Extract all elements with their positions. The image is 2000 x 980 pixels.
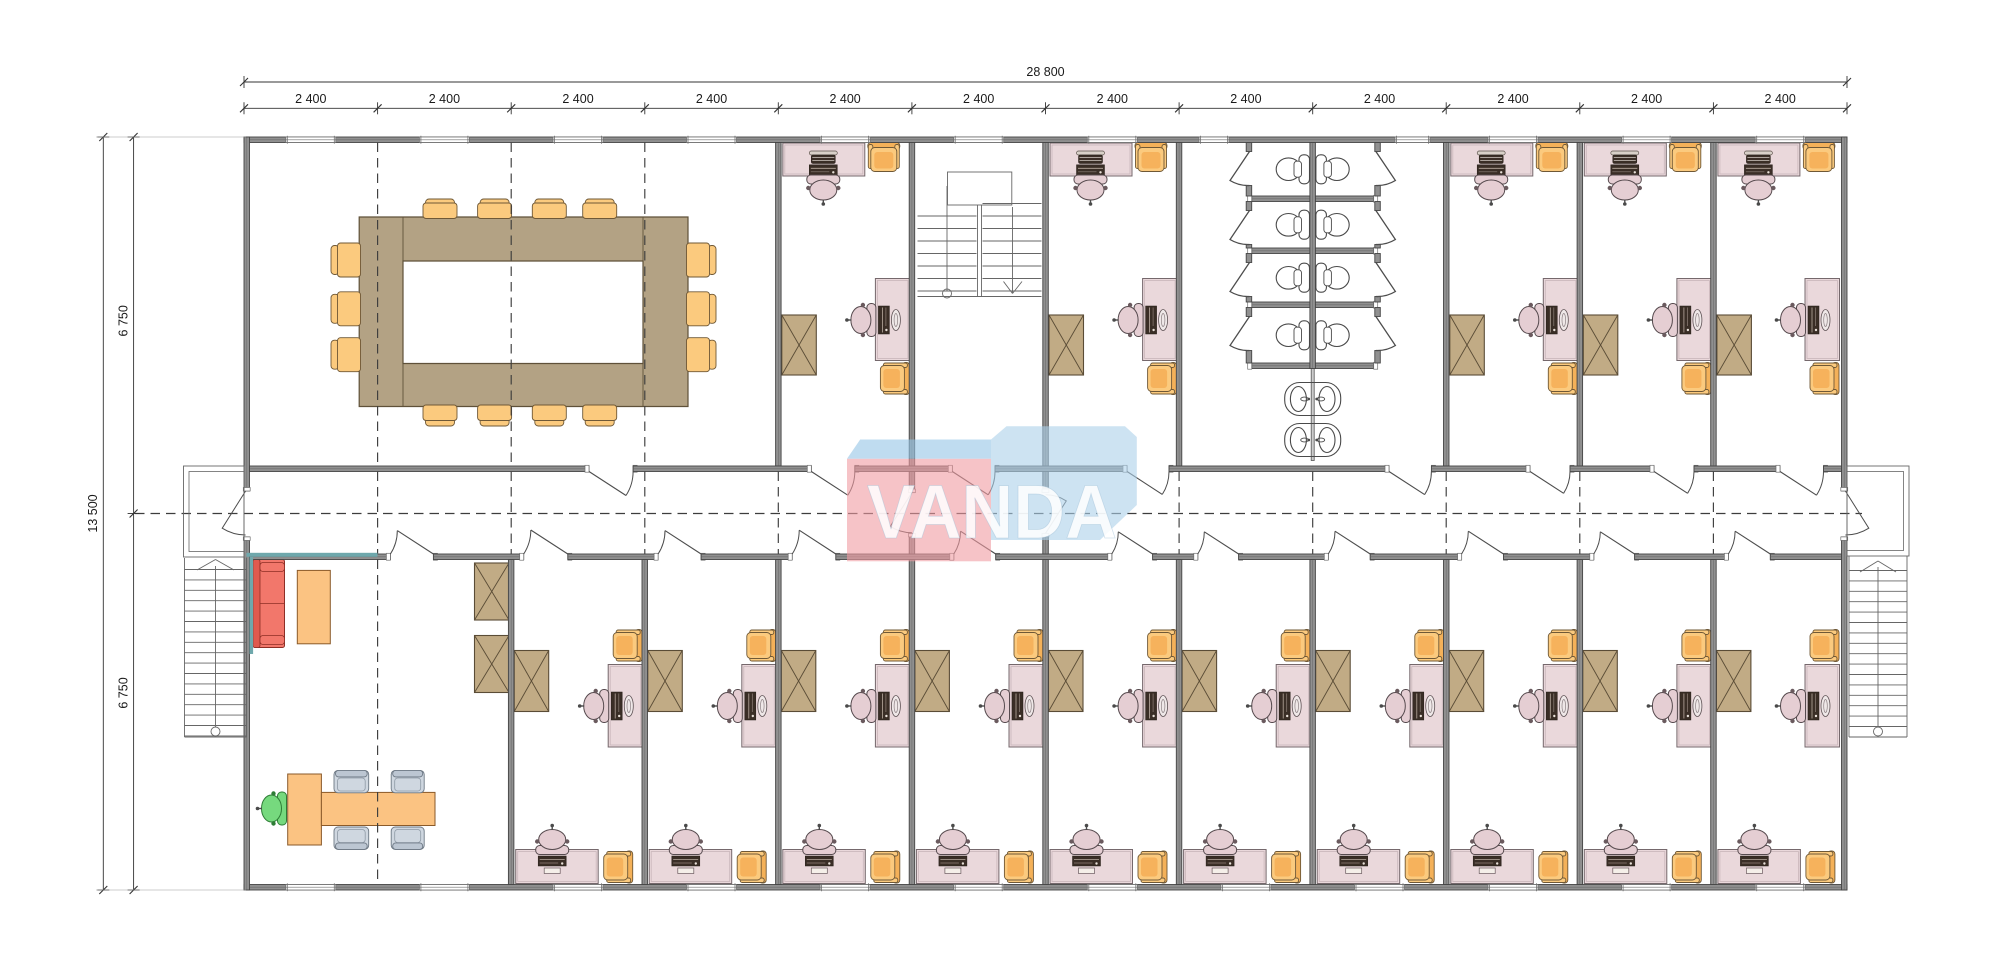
svg-text:6 750: 6 750 [117,677,131,708]
svg-text:2 400: 2 400 [562,92,593,106]
svg-text:2 400: 2 400 [696,92,727,106]
svg-text:2 400: 2 400 [1364,92,1395,106]
svg-text:VANDA: VANDA [867,470,1117,555]
svg-text:2 400: 2 400 [1097,92,1128,106]
svg-text:28 800: 28 800 [1026,65,1064,79]
svg-text:2 400: 2 400 [295,92,326,106]
svg-text:2 400: 2 400 [1631,92,1662,106]
svg-text:2 400: 2 400 [829,92,860,106]
svg-text:2 400: 2 400 [963,92,994,106]
svg-text:13 500: 13 500 [86,494,100,532]
svg-text:2 400: 2 400 [429,92,460,106]
svg-text:2 400: 2 400 [1230,92,1261,106]
svg-text:2 400: 2 400 [1765,92,1796,106]
svg-text:2 400: 2 400 [1497,92,1528,106]
svg-text:6 750: 6 750 [117,305,131,336]
